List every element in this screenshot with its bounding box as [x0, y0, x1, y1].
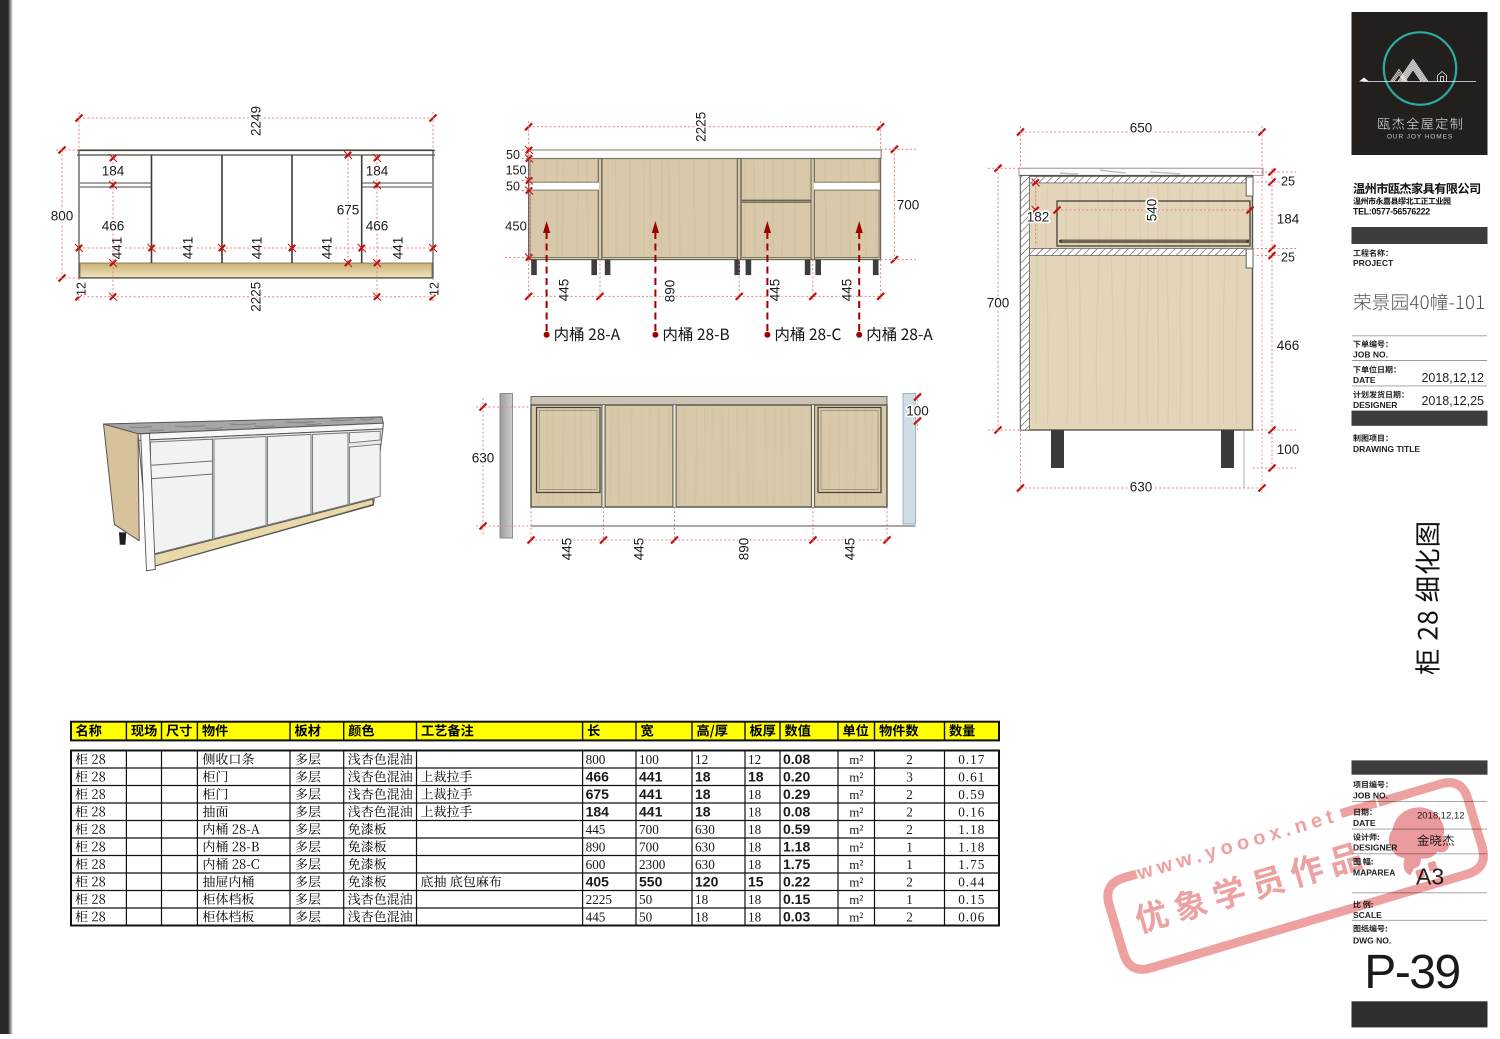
svg-text:184: 184 [1277, 211, 1300, 226]
svg-text:2018,12,12: 2018,12,12 [1421, 371, 1484, 385]
svg-text:18: 18 [748, 857, 762, 872]
svg-text:DWG NO.: DWG NO. [1353, 936, 1391, 946]
svg-text:184: 184 [102, 164, 125, 179]
svg-text:25: 25 [1281, 250, 1295, 264]
svg-text:630: 630 [695, 839, 715, 854]
svg-text:1.75: 1.75 [783, 856, 810, 872]
svg-text:18: 18 [695, 803, 711, 819]
svg-text:182: 182 [1027, 210, 1050, 225]
svg-text:405: 405 [586, 873, 610, 889]
svg-text:18: 18 [748, 787, 762, 802]
svg-text:m²: m² [849, 752, 863, 767]
svg-text:1: 1 [906, 857, 913, 872]
svg-text:445: 445 [557, 279, 572, 302]
svg-text:2: 2 [906, 752, 913, 767]
svg-text:675: 675 [337, 203, 360, 218]
svg-text:m²: m² [849, 909, 863, 924]
svg-text:700: 700 [987, 296, 1010, 311]
svg-text:2: 2 [906, 804, 913, 819]
svg-text:TEL:0577-56576222: TEL:0577-56576222 [1353, 207, 1430, 217]
svg-text:441: 441 [250, 237, 265, 260]
svg-text:100: 100 [906, 404, 929, 419]
svg-text:0.08: 0.08 [783, 803, 810, 819]
svg-text:2: 2 [906, 787, 913, 802]
svg-text:PROJECT: PROJECT [1353, 258, 1394, 268]
svg-text:441: 441 [181, 237, 196, 260]
svg-text:466: 466 [366, 219, 389, 234]
svg-text:0.59: 0.59 [783, 821, 810, 837]
svg-text:441: 441 [639, 768, 663, 784]
svg-text:650: 650 [1130, 121, 1153, 136]
svg-text:25: 25 [1281, 174, 1295, 188]
svg-text:800: 800 [586, 752, 606, 767]
svg-text:2249: 2249 [249, 106, 264, 136]
svg-text:445: 445 [632, 538, 647, 561]
svg-text:0.29: 0.29 [783, 786, 810, 802]
svg-text:0.08: 0.08 [783, 751, 810, 767]
svg-text:1: 1 [906, 839, 913, 854]
svg-text:445: 445 [839, 279, 854, 302]
svg-text:DESIGNER: DESIGNER [1353, 400, 1397, 410]
svg-text:0.16: 0.16 [958, 804, 985, 819]
svg-text:50: 50 [506, 180, 520, 194]
svg-text:SCALE: SCALE [1353, 910, 1382, 920]
svg-text:441: 441 [639, 786, 663, 802]
svg-text:100: 100 [1277, 442, 1300, 457]
svg-text:120: 120 [695, 873, 719, 889]
svg-text:m²: m² [849, 769, 863, 784]
svg-text:540: 540 [1145, 199, 1160, 222]
svg-text:630: 630 [1130, 480, 1153, 495]
svg-text:2225: 2225 [586, 892, 613, 907]
svg-text:50: 50 [639, 909, 653, 924]
svg-text:m²: m² [849, 787, 863, 802]
svg-text:630: 630 [472, 451, 495, 466]
svg-text:1.18: 1.18 [783, 838, 810, 854]
svg-text:0.59: 0.59 [958, 787, 985, 802]
svg-text:2: 2 [906, 874, 913, 889]
svg-text:630: 630 [695, 822, 715, 837]
svg-text:2: 2 [906, 909, 913, 924]
svg-text:m²: m² [849, 892, 863, 907]
svg-text:445: 445 [586, 909, 606, 924]
svg-text:0.20: 0.20 [783, 768, 810, 784]
svg-text:441: 441 [391, 237, 406, 260]
svg-text:600: 600 [586, 857, 606, 872]
svg-text:445: 445 [560, 538, 575, 561]
svg-text:m²: m² [849, 822, 863, 837]
svg-text:2225: 2225 [249, 282, 264, 312]
svg-text:441: 441 [110, 237, 125, 260]
svg-text:18: 18 [695, 909, 709, 924]
svg-text:2225: 2225 [694, 112, 709, 142]
svg-text:m²: m² [849, 839, 863, 854]
svg-text:18: 18 [748, 892, 762, 907]
svg-text:15: 15 [748, 873, 764, 889]
svg-text:890: 890 [586, 839, 606, 854]
svg-text:0.17: 0.17 [958, 752, 985, 767]
svg-text:890: 890 [663, 280, 678, 303]
svg-text:DATE: DATE [1353, 375, 1376, 385]
svg-text:450: 450 [505, 219, 527, 234]
svg-text:630: 630 [695, 857, 715, 872]
svg-text:441: 441 [320, 237, 335, 260]
svg-text:12: 12 [695, 752, 708, 767]
svg-text:50: 50 [506, 148, 520, 162]
svg-text:550: 550 [639, 873, 663, 889]
svg-text:700: 700 [639, 839, 659, 854]
svg-text:1.75: 1.75 [958, 857, 985, 872]
svg-text:1.18: 1.18 [958, 822, 985, 837]
svg-text:466: 466 [586, 768, 610, 784]
svg-text:2300: 2300 [639, 857, 666, 872]
svg-text:445: 445 [843, 538, 858, 561]
svg-text:800: 800 [51, 209, 74, 224]
svg-text:JOB NO.: JOB NO. [1353, 350, 1388, 360]
svg-text:18: 18 [695, 768, 711, 784]
svg-text:12: 12 [74, 282, 88, 296]
svg-text:0.15: 0.15 [958, 892, 985, 907]
svg-text:0.61: 0.61 [958, 769, 985, 784]
svg-text:OUR JOY HOMES: OUR JOY HOMES [1387, 134, 1453, 141]
svg-text:0.15: 0.15 [783, 891, 810, 907]
svg-text:2018,12,25: 2018,12,25 [1421, 394, 1484, 408]
svg-text:0.06: 0.06 [958, 909, 985, 924]
svg-text:0.03: 0.03 [783, 908, 810, 924]
svg-text:445: 445 [586, 822, 606, 837]
svg-text:0.44: 0.44 [958, 874, 985, 889]
svg-text:P-39: P-39 [1364, 946, 1459, 999]
svg-text:441: 441 [639, 803, 663, 819]
svg-text:3: 3 [906, 769, 913, 784]
svg-text:m²: m² [849, 804, 863, 819]
svg-text:2: 2 [906, 822, 913, 837]
svg-text:466: 466 [102, 219, 125, 234]
svg-text:18: 18 [748, 909, 762, 924]
svg-text:890: 890 [737, 538, 752, 561]
svg-text:1.18: 1.18 [958, 839, 985, 854]
svg-text:445: 445 [768, 279, 783, 302]
svg-text:100: 100 [639, 752, 659, 767]
svg-text:DRAWING TITLE: DRAWING TITLE [1353, 444, 1420, 454]
svg-text:18: 18 [748, 768, 764, 784]
svg-text:150: 150 [506, 164, 527, 178]
svg-text:184: 184 [366, 164, 389, 179]
svg-text:18: 18 [748, 804, 762, 819]
svg-text:18: 18 [748, 822, 762, 837]
svg-text:0.22: 0.22 [783, 873, 810, 889]
svg-text:184: 184 [586, 803, 610, 819]
svg-text:18: 18 [695, 892, 709, 907]
svg-text:12: 12 [748, 752, 761, 767]
svg-text:DATE: DATE [1353, 818, 1376, 828]
svg-text:m²: m² [849, 874, 863, 889]
svg-text:700: 700 [897, 198, 920, 213]
svg-text:18: 18 [695, 786, 711, 802]
svg-text:466: 466 [1277, 338, 1300, 353]
svg-text:675: 675 [586, 786, 610, 802]
svg-text:m²: m² [849, 857, 863, 872]
svg-text:50: 50 [639, 892, 653, 907]
svg-text:1: 1 [906, 892, 913, 907]
svg-text:12: 12 [427, 282, 441, 296]
svg-text:700: 700 [639, 822, 659, 837]
svg-text:18: 18 [748, 839, 762, 854]
